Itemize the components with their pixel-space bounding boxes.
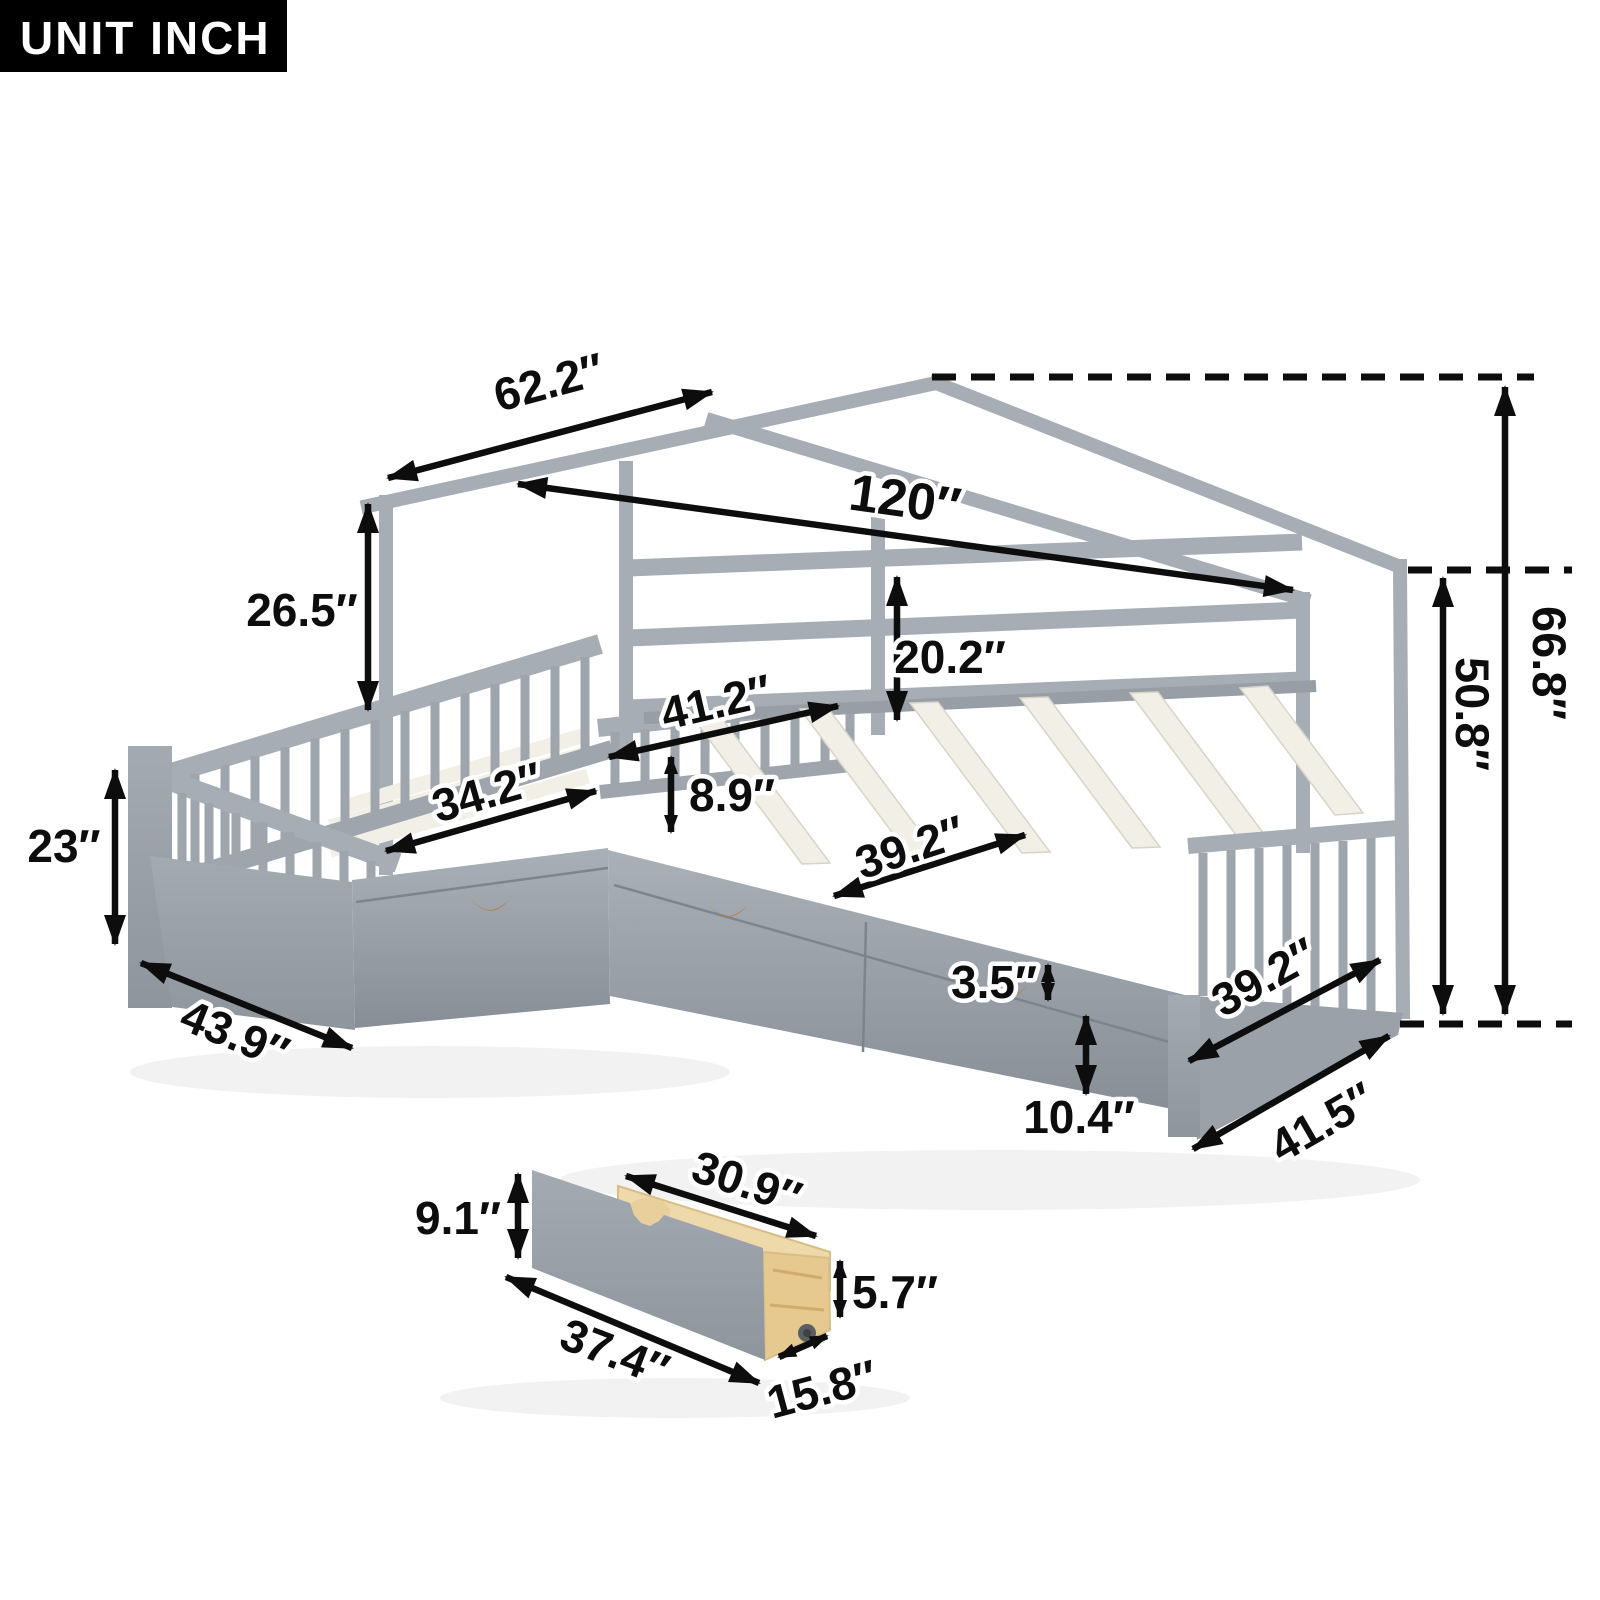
dim-drawer-box-depth: 15.8″ [761, 1349, 882, 1428]
bed-dimension-diagram: 62.2″ 120″ 26.5″ 23″ 43.9″ 34.2″ 41.2″ 8… [0, 0, 1600, 1600]
dim-overall-height: 66.8″ [1523, 606, 1576, 720]
post-right-front [1400, 566, 1403, 1012]
unit-badge: UNIT INCH [0, 0, 287, 72]
roof-right-beam [936, 383, 1398, 566]
roof-rear-beam [713, 421, 1303, 599]
dim-wall-post-height: 50.8″ [1446, 657, 1499, 771]
right-bed-corner-post [1168, 995, 1200, 1137]
drawer-caster-hub [803, 1329, 811, 1337]
dim-side-rail-thickness: 3.5″ [951, 956, 1037, 1008]
dim-total-length: 120″ [846, 464, 965, 537]
dim-roof-slope-length: 62.2″ [488, 342, 609, 421]
dim-roof-to-rail-height: 26.5″ [246, 584, 358, 636]
dim-foot-rail-height: 23″ [27, 820, 100, 872]
unit-badge-label: UNIT INCH [20, 12, 271, 64]
dim-headboard-rail-height: 20.2″ [894, 631, 1006, 683]
dim-junction-width: 41.2″ [656, 664, 776, 740]
dim-guardrail-height: 8.9″ [689, 769, 775, 821]
dim-drawer-box-height: 5.7″ [852, 1266, 938, 1318]
diagram-canvas: 62.2″ 120″ 26.5″ 23″ 43.9″ 34.2″ 41.2″ 8… [0, 0, 1600, 1600]
dim-under-bed-clearance: 10.4″ [1023, 1091, 1135, 1143]
left-bed-footboard-panel [150, 856, 355, 1030]
dim-drawer-front-height: 9.1″ [415, 1192, 501, 1244]
